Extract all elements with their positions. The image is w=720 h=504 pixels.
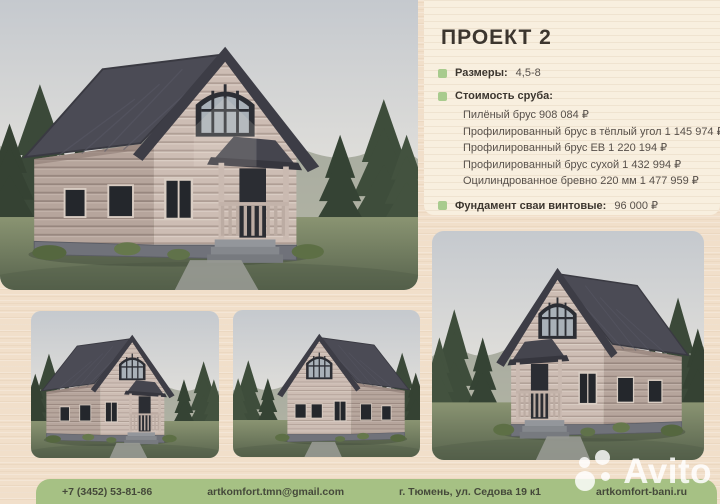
green-square-bullet-icon [438,92,447,101]
foundation-label: Фундамент сваи винтовые: [455,199,606,213]
house-render-side-view [233,310,420,457]
foundation-value: 96 000 ₽ [614,199,658,213]
cost-label: Стоимость сруба: [455,89,553,103]
spec-row-cost: Стоимость сруба: [438,89,710,103]
size-value: 4,5-8 [516,66,541,80]
cost-item: Профилированный брус в тёплый угол 1 145… [463,124,710,141]
footer-website: artkomfort-bani.ru [596,486,687,498]
house-render-front-view [432,231,704,460]
footer-email: artkomfort.tmn@gmail.com [207,486,344,498]
green-square-bullet-icon [438,201,447,210]
project-title: ПРОЕКТ 2 [441,26,710,50]
footer-contact-bar: +7 (3452) 53-81-86 artkomfort.tmn@gmail.… [36,479,717,504]
spec-row-size: Размеры: 4,5-8 [438,66,710,80]
footer-address: г. Тюмень, ул. Седова 19 к1 [399,486,541,498]
cost-list: Пилёный брус 908 084 ₽ Профилированный б… [463,107,710,190]
footer-phone: +7 (3452) 53-81-86 [62,486,152,498]
cost-item: Профилированный брус ЕВ 1 220 194 ₽ [463,140,710,157]
cost-item: Пилёный брус 908 084 ₽ [463,107,710,124]
green-square-bullet-icon [438,69,447,78]
cost-item: Профилированный брус сухой 1 432 994 ₽ [463,157,710,174]
project-info-panel: ПРОЕКТ 2 Размеры: 4,5-8 Стоимость сруба:… [424,0,720,215]
spec-row-foundation: Фундамент сваи винтовые: 96 000 ₽ [438,199,710,213]
flyer-canvas: ПРОЕКТ 2 Размеры: 4,5-8 Стоимость сруба:… [0,0,720,504]
cost-item: Оцилиндрованное бревно 220 мм 1 477 959 … [463,173,710,190]
house-render-rear-view [31,311,219,458]
size-label: Размеры: [455,66,508,80]
house-render-main [0,0,418,290]
